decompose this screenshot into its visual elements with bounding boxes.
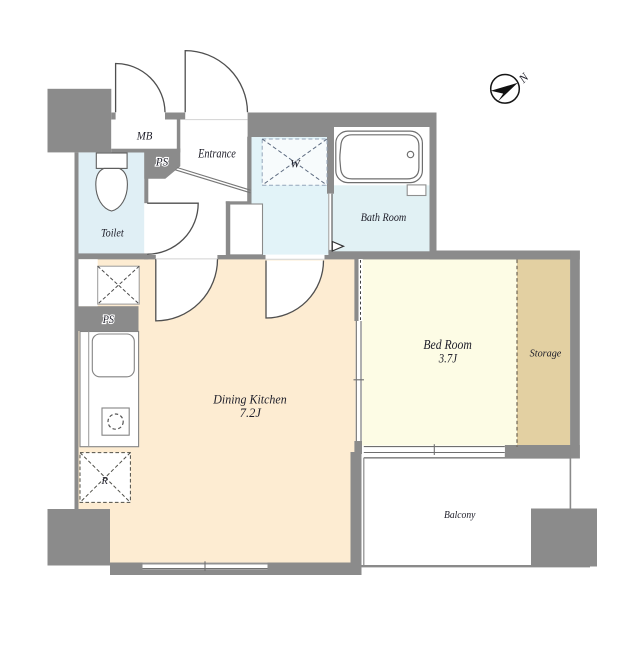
svg-text:3.7J: 3.7J — [438, 350, 458, 365]
svg-text:Balcony: Balcony — [444, 509, 475, 521]
svg-text:Bath Room: Bath Room — [361, 212, 407, 224]
svg-text:7.2J: 7.2J — [240, 405, 262, 420]
svg-text:Toilet: Toilet — [101, 225, 124, 239]
svg-text:Storage: Storage — [530, 347, 562, 359]
svg-text:R: R — [100, 476, 108, 487]
svg-text:MB: MB — [136, 129, 153, 143]
svg-text:PS: PS — [102, 314, 114, 326]
svg-text:Entrance: Entrance — [197, 146, 236, 160]
svg-text:PS: PS — [155, 156, 168, 168]
svg-text:W: W — [290, 159, 301, 171]
